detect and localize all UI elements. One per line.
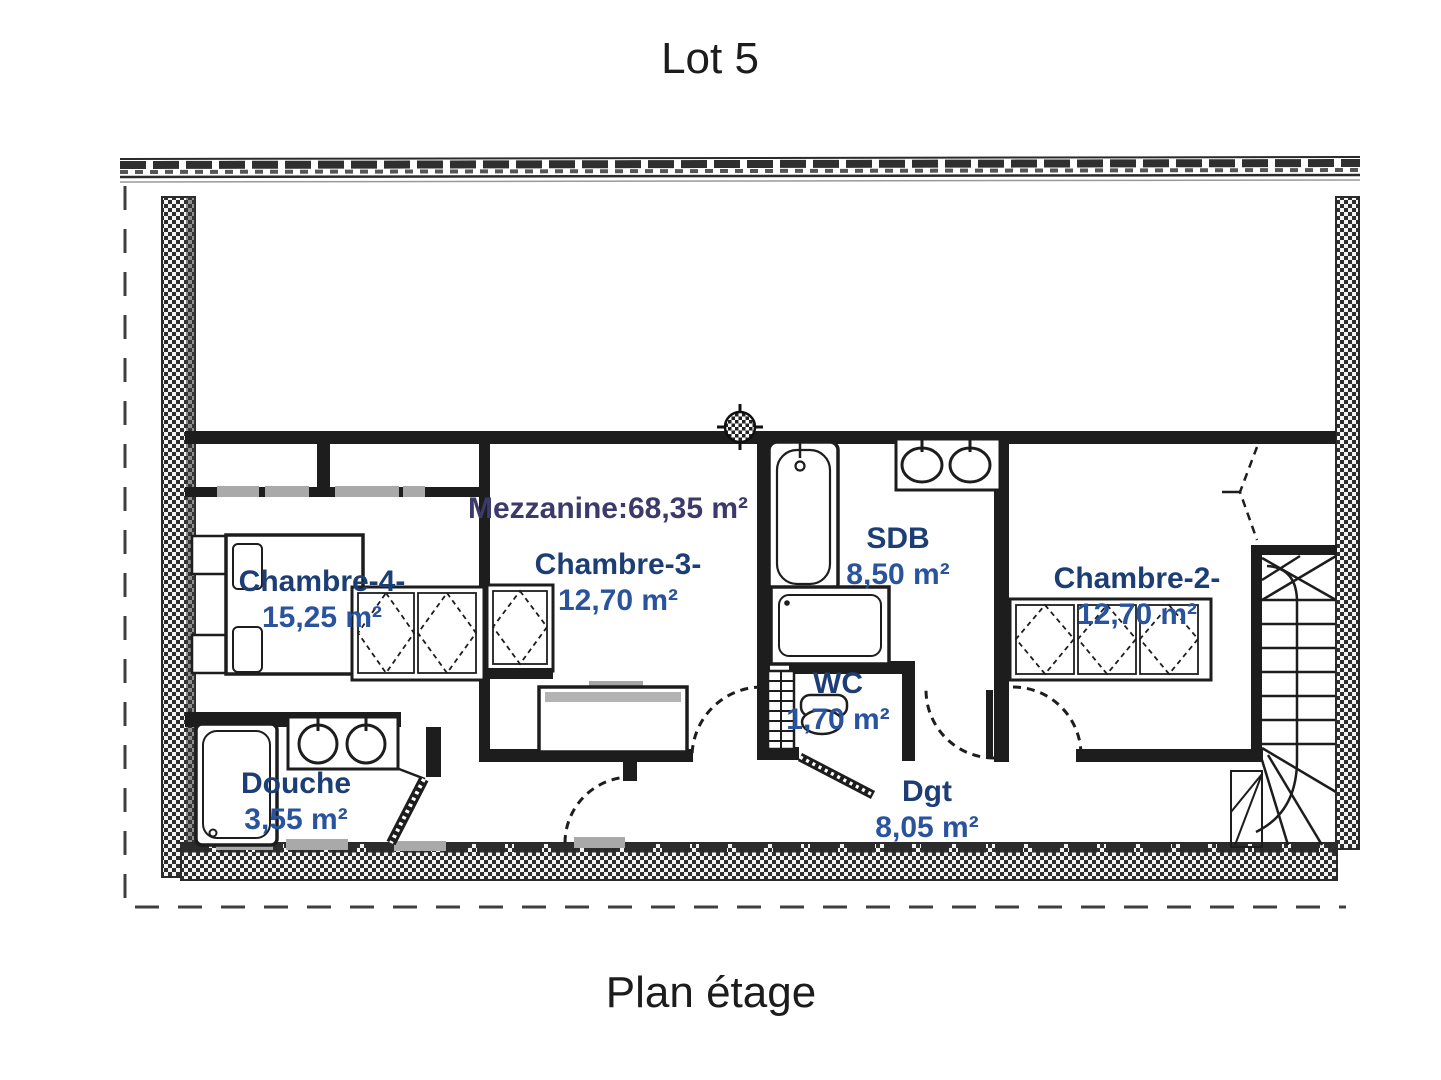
room-area: 8,05 m²	[875, 810, 978, 846]
floor-plan-drawing	[0, 0, 1441, 1080]
winder-tread	[1262, 748, 1336, 792]
floor-plan-page: Lot 5	[0, 0, 1441, 1080]
chambre3-door-arc	[692, 687, 762, 757]
staircase	[1222, 447, 1336, 847]
room-name: Chambre-2-	[1054, 561, 1221, 597]
sdb-vanity-sinks	[896, 439, 1000, 490]
chambre2-door-arc	[1013, 687, 1081, 755]
room-area: 15,25 m²	[239, 600, 406, 636]
room-label-chambre2: Chambre-2- 12,70 m²	[1054, 561, 1221, 633]
room-name: Dgt	[875, 774, 978, 810]
room-label-douche: Douche 3,55 m²	[241, 766, 351, 838]
room-name: Douche	[241, 766, 351, 802]
room-label-dgt: Dgt 8,05 m²	[875, 774, 978, 846]
window	[286, 839, 348, 850]
stairs-winder-box	[1231, 771, 1262, 847]
room-area: 1,70 m²	[786, 702, 889, 738]
nightstand	[192, 635, 227, 673]
room-name: Chambre-3-	[535, 547, 702, 583]
mezzanine-label: Mezzanine:68,35 m²	[468, 492, 748, 526]
corridor-door-arc	[565, 777, 631, 843]
plan-caption: Plan étage	[606, 968, 816, 1018]
sdb-unit	[771, 587, 889, 664]
stairs-left-wall	[1251, 545, 1262, 762]
room-label-chambre4: Chambre-4- 15,25 m²	[239, 564, 406, 636]
sdb-door-arc	[926, 690, 994, 758]
douche-door-post	[426, 727, 441, 777]
room-area: 12,70 m²	[1054, 597, 1221, 633]
top-boundary-wall	[120, 157, 1360, 182]
douche-angled-wall	[391, 769, 425, 843]
winder-tread	[1235, 774, 1262, 845]
room-area: 12,70 m²	[535, 583, 702, 619]
dresser-chambre3	[539, 681, 687, 752]
winder-tread	[1262, 760, 1288, 845]
wc-angled-wall	[800, 757, 873, 795]
room-area: 3,55 m²	[241, 802, 351, 838]
room-name: SDB	[846, 521, 949, 557]
room-label-wc: WC 1,70 m²	[786, 666, 889, 738]
window	[574, 837, 625, 848]
window	[335, 486, 399, 497]
stairs-top-wall	[1251, 545, 1337, 555]
chambre2-bottom-wall	[1076, 749, 1263, 762]
douche-vanity-sinks	[288, 717, 398, 769]
room-name: Chambre-4-	[239, 564, 406, 600]
bottom-exterior-wall	[181, 843, 1337, 880]
window	[217, 486, 259, 497]
room-name: WC	[786, 666, 889, 702]
winder-tread	[1231, 774, 1262, 812]
wall-stub-chambre4	[317, 431, 330, 491]
room-label-chambre3: Chambre-3- 12,70 m²	[535, 547, 702, 619]
right-exterior-wall	[1336, 197, 1359, 849]
sdb-door-leaf	[986, 690, 993, 758]
nightstand	[192, 536, 227, 574]
left-exterior-wall	[162, 197, 195, 877]
room-area: 8,50 m²	[846, 557, 949, 593]
bathtub	[769, 442, 838, 592]
window	[265, 486, 309, 497]
window	[403, 486, 425, 497]
room-label-sdb: SDB 8,50 m²	[846, 521, 949, 593]
wc-right-wall	[902, 661, 915, 761]
window	[394, 841, 446, 851]
roof-slope-dashed-line	[1240, 447, 1257, 540]
